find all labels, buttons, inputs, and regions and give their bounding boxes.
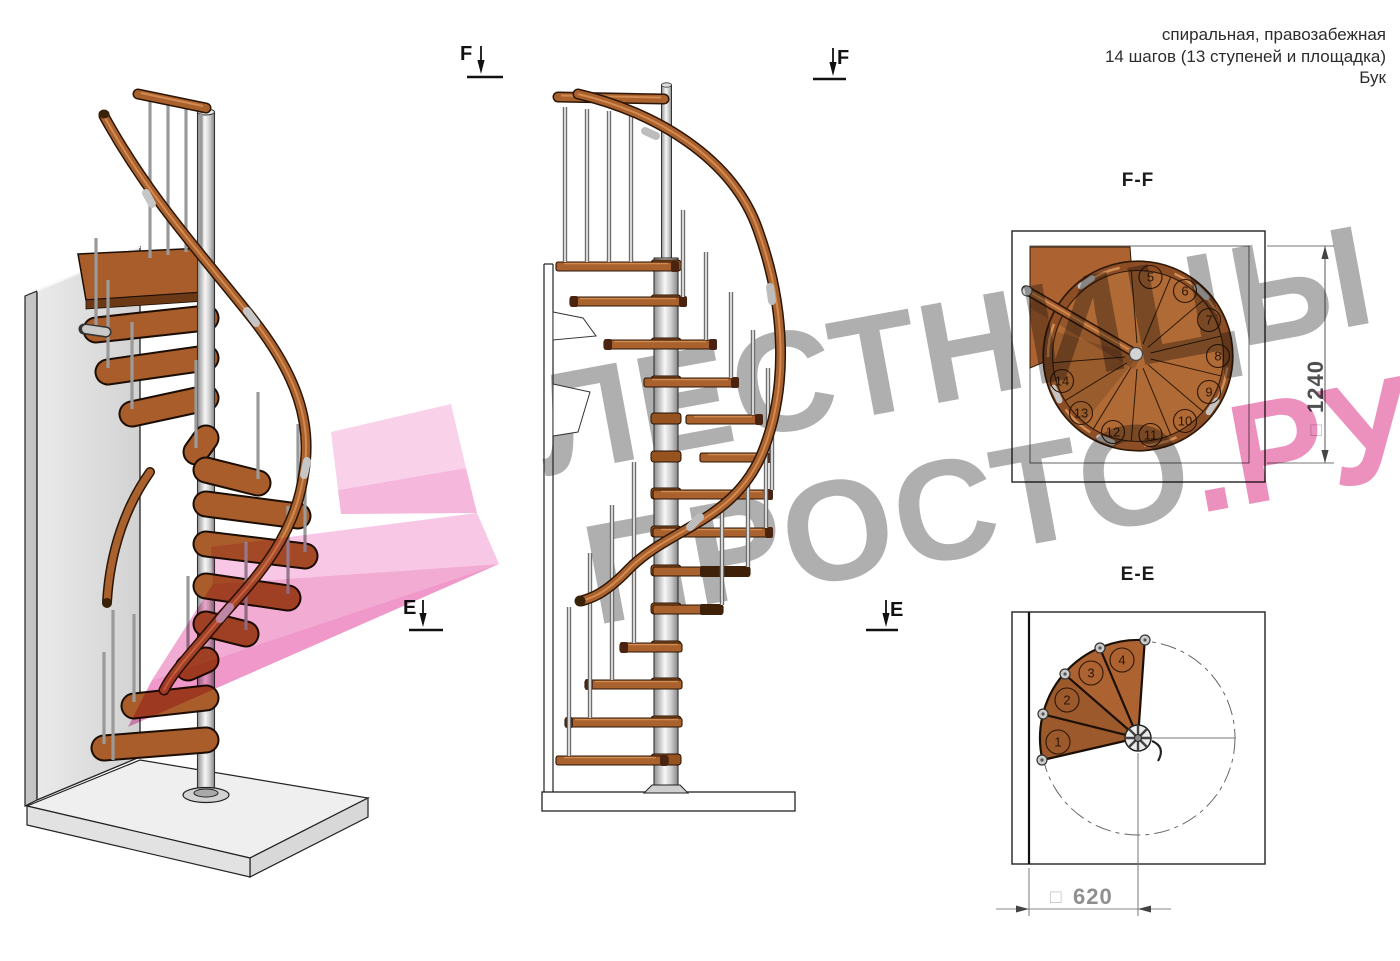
staircase-renders-layer [0,0,1400,961]
section-marker-f-left: F [454,40,510,84]
drawing-sheet: { "header": { "line1": "спиральная, прав… [0,0,1400,961]
floor-elevation [542,792,795,811]
elevation-view [542,83,795,811]
section-arrow-icon [477,60,484,74]
landing-rail-3d [138,93,206,258]
staircase-3d-view [25,93,368,877]
section-arrow-icon [882,613,889,627]
section-marker-e-left: E [398,594,454,638]
section-marker-e-right: E [858,594,914,638]
section-arrow-icon [419,613,426,627]
svg-text:E: E [403,597,416,619]
svg-text:F: F [460,43,472,65]
section-arrow-icon [829,62,836,76]
section-marker-f-right: F [806,42,862,86]
handrail-end-cap [575,596,586,607]
svg-text:F: F [837,47,849,69]
handrail-end-cap [102,598,112,608]
svg-text:E: E [890,599,903,621]
